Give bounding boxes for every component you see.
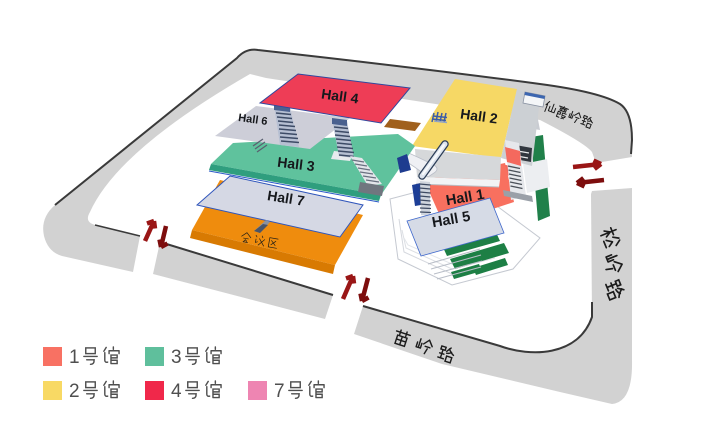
svg-text:4: 4 xyxy=(171,381,182,402)
svg-text:3: 3 xyxy=(171,347,182,368)
svg-text:2: 2 xyxy=(69,381,80,402)
svg-text:1: 1 xyxy=(69,347,80,368)
svg-text:7: 7 xyxy=(274,381,285,402)
